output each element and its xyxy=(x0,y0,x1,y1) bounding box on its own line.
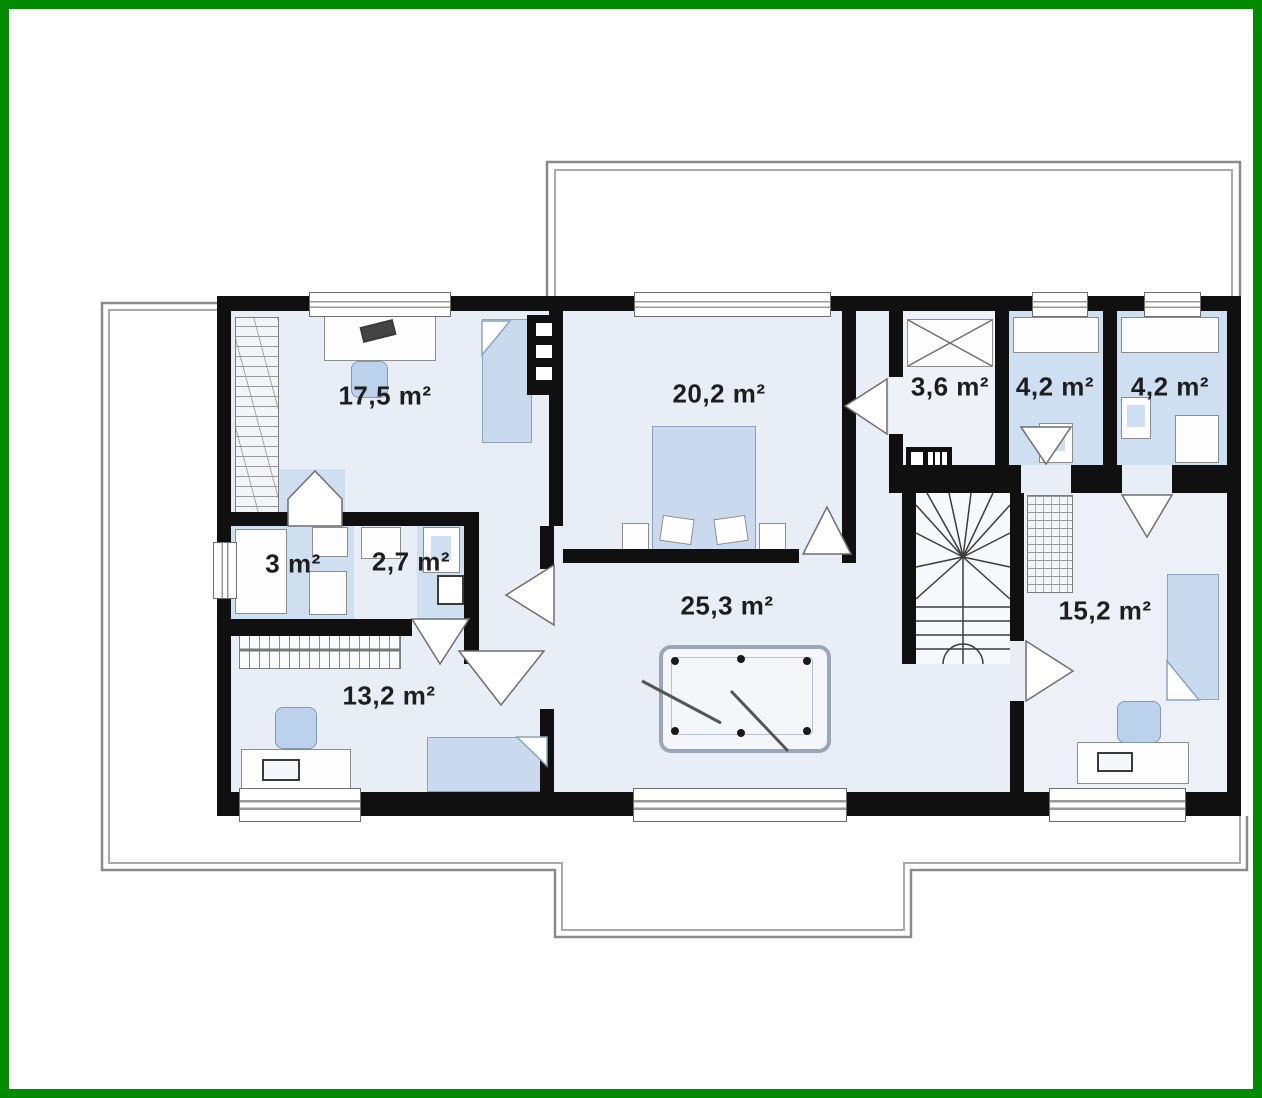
room-label-20-2: 20,2 m² xyxy=(672,379,765,410)
wall-h1b xyxy=(342,512,479,526)
window-top-3 xyxy=(1032,292,1088,317)
room-label-4-2a: 4,2 m² xyxy=(1016,372,1094,403)
pc-right xyxy=(1097,752,1133,772)
window-top-4 xyxy=(1144,292,1201,317)
room-label-15-2: 15,2 m² xyxy=(1058,596,1151,627)
desk-chair-right xyxy=(1117,701,1161,743)
wardrobe-rail xyxy=(239,631,401,669)
room-label-4-2b: 4,2 m² xyxy=(1131,372,1209,403)
window-top-1 xyxy=(309,292,451,317)
wall-bath1-bath2 xyxy=(1103,311,1117,465)
window-bottom-1 xyxy=(239,788,361,822)
window-bottom-2 xyxy=(633,788,847,822)
bed-bottom-left xyxy=(427,737,547,792)
wall-152-left-a xyxy=(1010,493,1024,641)
chimney-flue-1 xyxy=(536,323,552,336)
bed-top-left xyxy=(482,319,532,443)
wall-band-a xyxy=(889,465,1021,493)
nightstand-left xyxy=(622,523,649,552)
wall-v2 xyxy=(464,512,479,664)
wall-closet-left-a xyxy=(889,311,903,377)
wardrobe-hatch-right xyxy=(1027,495,1073,593)
floor-stairwell xyxy=(909,493,1010,664)
boiler-wc xyxy=(437,575,464,605)
wall-stair-left xyxy=(902,493,916,664)
floor-plan: 17,5 m² 20,2 m² 3,6 m² 4,2 m² 4,2 m² 3 m… xyxy=(0,0,1262,1098)
wall-closet-bath1 xyxy=(995,311,1009,465)
wall-band-b xyxy=(1071,465,1122,493)
wall-20-bottom xyxy=(563,549,799,563)
window-left xyxy=(213,542,237,599)
wardrobe-hatch-top-left xyxy=(235,317,279,517)
pc-bottom-left xyxy=(262,759,300,781)
wall-closet-left-b xyxy=(889,434,903,465)
bed-right xyxy=(1167,574,1219,700)
pillow-left xyxy=(659,515,694,545)
room-label-3: 3 m² xyxy=(265,549,320,580)
room-label-2-7: 2,7 m² xyxy=(372,547,450,578)
wall-right xyxy=(1227,296,1241,816)
room-label-3-6: 3,6 m² xyxy=(911,372,989,403)
desk-right xyxy=(1077,742,1189,784)
wall-h1a xyxy=(231,512,288,526)
washer-bathroom-2 xyxy=(1175,415,1219,463)
wall-152-left-b xyxy=(1010,701,1024,792)
nightstand-right xyxy=(759,523,786,552)
wall-hall-b xyxy=(540,709,554,792)
wall-20-right xyxy=(842,311,856,563)
dormer-outline-outer xyxy=(547,162,1240,296)
wall-hall-a xyxy=(540,526,554,569)
wall-band-c xyxy=(1172,465,1227,493)
chimney-flue-2 xyxy=(536,345,552,358)
toilet-seat-2 xyxy=(1127,405,1145,427)
pillow-right xyxy=(713,515,748,545)
storage-xbox xyxy=(907,319,993,367)
shelf-vents xyxy=(928,452,948,465)
window-bottom-3 xyxy=(1049,788,1186,822)
room-label-25-3: 25,3 m² xyxy=(680,591,773,622)
vanity-bathroom-1 xyxy=(1013,317,1099,353)
desk-chair-bottom-left xyxy=(275,707,317,749)
chimney-flue-3 xyxy=(536,367,552,380)
wall-h2 xyxy=(231,619,412,636)
vanity-bathroom-2 xyxy=(1121,317,1219,353)
room-label-17-5: 17,5 m² xyxy=(338,381,431,412)
floor-door-patch xyxy=(279,469,345,514)
toilet-seat-1 xyxy=(1047,431,1065,451)
window-top-2 xyxy=(634,292,831,317)
billiard-table-inner xyxy=(671,657,813,735)
shelf-slot xyxy=(911,452,923,465)
room-label-13-2: 13,2 m² xyxy=(342,681,435,712)
dormer-outline-inner xyxy=(555,170,1232,296)
